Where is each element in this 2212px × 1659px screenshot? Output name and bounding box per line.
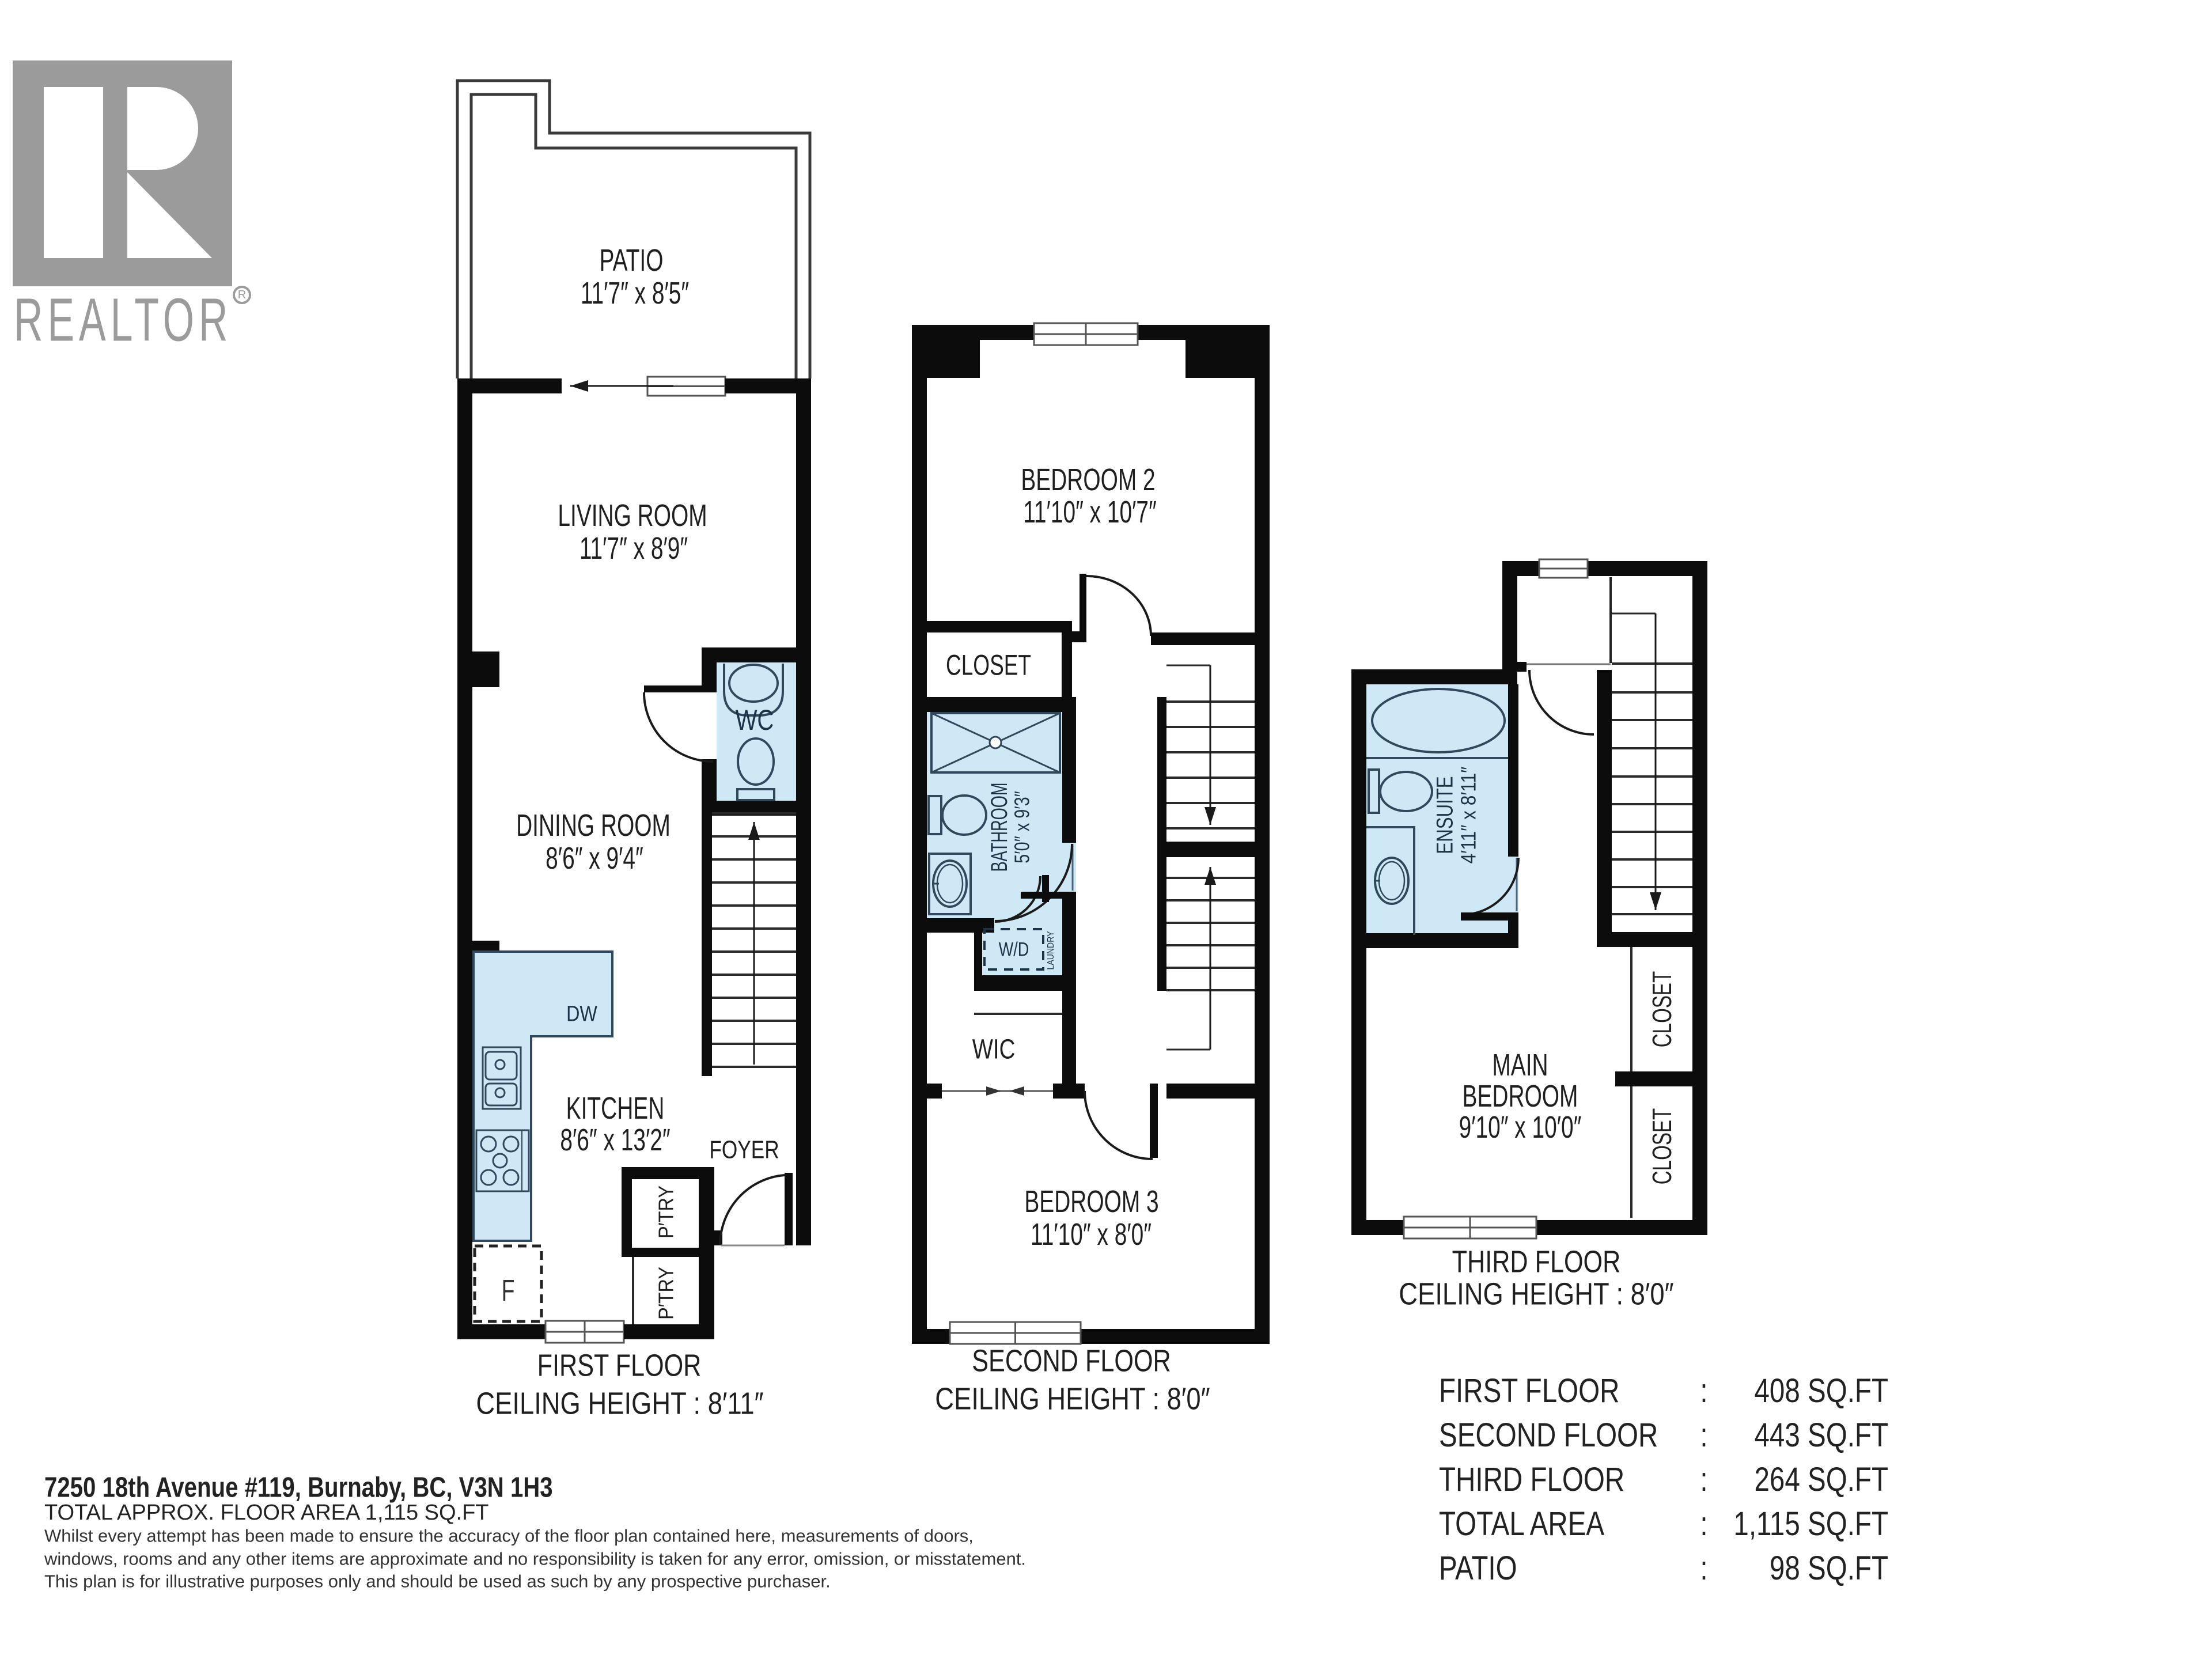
- svg-text::: :: [1700, 1417, 1707, 1455]
- svg-text:ENSUITE: ENSUITE: [1432, 776, 1458, 854]
- svg-text:CEILING HEIGHT : 8′11″: CEILING HEIGHT : 8′11″: [476, 1386, 763, 1421]
- svg-text:PATIO: PATIO: [1439, 1550, 1517, 1588]
- svg-text:R: R: [238, 289, 246, 301]
- svg-text:MAIN: MAIN: [1492, 1047, 1548, 1082]
- svg-text:KITCHEN: KITCHEN: [566, 1090, 665, 1126]
- svg-text:P′TRY: P′TRY: [655, 1185, 678, 1238]
- svg-text:DW: DW: [566, 1002, 597, 1026]
- svg-text:BEDROOM: BEDROOM: [1463, 1078, 1578, 1113]
- svg-text:CEILING HEIGHT : 8′0″: CEILING HEIGHT : 8′0″: [1399, 1277, 1673, 1312]
- svg-text:443 SQ.FT: 443 SQ.FT: [1754, 1417, 1888, 1455]
- svg-text:Whilst every attempt has been: Whilst every attempt has been made to en…: [44, 1526, 974, 1546]
- svg-text:THIRD FLOOR: THIRD FLOOR: [1452, 1245, 1621, 1279]
- svg-text:98 SQ.FT: 98 SQ.FT: [1770, 1550, 1888, 1588]
- svg-text:11′7″ x 8′9″: 11′7″ x 8′9″: [579, 531, 688, 566]
- svg-text:WIC: WIC: [972, 1034, 1016, 1065]
- svg-text:CLOSET: CLOSET: [946, 649, 1031, 681]
- svg-text:This plan is for illustrative: This plan is for illustrative purposes o…: [44, 1571, 831, 1592]
- svg-text:SECOND FLOOR: SECOND FLOOR: [1439, 1417, 1658, 1455]
- svg-text:CLOSET: CLOSET: [1648, 971, 1677, 1048]
- svg-text:TOTAL AREA: TOTAL AREA: [1439, 1506, 1605, 1543]
- svg-text:F: F: [502, 1274, 515, 1308]
- svg-text:408 SQ.FT: 408 SQ.FT: [1754, 1373, 1888, 1410]
- svg-text:9′10″ x 10′0″: 9′10″ x 10′0″: [1459, 1109, 1582, 1145]
- svg-text:TOTAL APPROX. FLOOR AREA 1,115: TOTAL APPROX. FLOOR AREA 1,115 SQ.FT: [44, 1501, 489, 1525]
- svg-text:REALTOR: REALTOR: [14, 286, 232, 354]
- svg-text:windows, rooms and any other i: windows, rooms and any other items are a…: [44, 1549, 1026, 1569]
- svg-text:264 SQ.FT: 264 SQ.FT: [1754, 1461, 1888, 1499]
- svg-text:SECOND FLOOR: SECOND FLOOR: [972, 1344, 1171, 1378]
- svg-text:FOYER: FOYER: [709, 1136, 779, 1164]
- svg-text:11′10″ x 8′0″: 11′10″ x 8′0″: [1031, 1217, 1152, 1252]
- svg-text:FIRST FLOOR: FIRST FLOOR: [1439, 1373, 1619, 1410]
- svg-text:PATIO: PATIO: [600, 243, 664, 278]
- svg-text:FIRST FLOOR: FIRST FLOOR: [537, 1349, 702, 1383]
- svg-text:BEDROOM 3: BEDROOM 3: [1024, 1184, 1158, 1219]
- svg-text:CEILING HEIGHT : 8′0″: CEILING HEIGHT : 8′0″: [935, 1381, 1210, 1416]
- svg-text::: :: [1700, 1550, 1707, 1588]
- svg-text:1,115 SQ.FT: 1,115 SQ.FT: [1733, 1506, 1888, 1543]
- svg-text:11′10″ x 10′7″: 11′10″ x 10′7″: [1023, 494, 1157, 529]
- svg-text:THIRD FLOOR: THIRD FLOOR: [1439, 1461, 1624, 1499]
- svg-text:7250 18th Avenue #119, Burnaby: 7250 18th Avenue #119, Burnaby, BC, V3N …: [44, 1472, 553, 1503]
- svg-text:DINING ROOM: DINING ROOM: [516, 808, 671, 843]
- svg-text:CLOSET: CLOSET: [1648, 1108, 1677, 1185]
- svg-text:W/D: W/D: [999, 938, 1029, 961]
- svg-text:WC: WC: [736, 704, 774, 736]
- svg-text:11′7″ x 8′5″: 11′7″ x 8′5″: [581, 275, 689, 310]
- svg-text:5′0″ x 9′3″: 5′0″ x 9′3″: [1010, 791, 1034, 863]
- svg-text:LIVING ROOM: LIVING ROOM: [558, 498, 707, 533]
- svg-text:8′6″ x 9′4″: 8′6″ x 9′4″: [546, 840, 643, 876]
- svg-text:LAUNDRY: LAUNDRY: [1046, 931, 1056, 969]
- svg-text:BEDROOM 2: BEDROOM 2: [1021, 462, 1155, 497]
- svg-text::: :: [1700, 1373, 1707, 1410]
- svg-text::: :: [1700, 1506, 1707, 1543]
- svg-text:P′TRY: P′TRY: [655, 1267, 678, 1320]
- svg-text::: :: [1700, 1461, 1707, 1499]
- svg-text:4′11″ x 8′11″: 4′11″ x 8′11″: [1457, 767, 1480, 864]
- svg-text:BATHROOM: BATHROOM: [987, 782, 1012, 872]
- svg-text:8′6″ x 13′2″: 8′6″ x 13′2″: [560, 1122, 670, 1157]
